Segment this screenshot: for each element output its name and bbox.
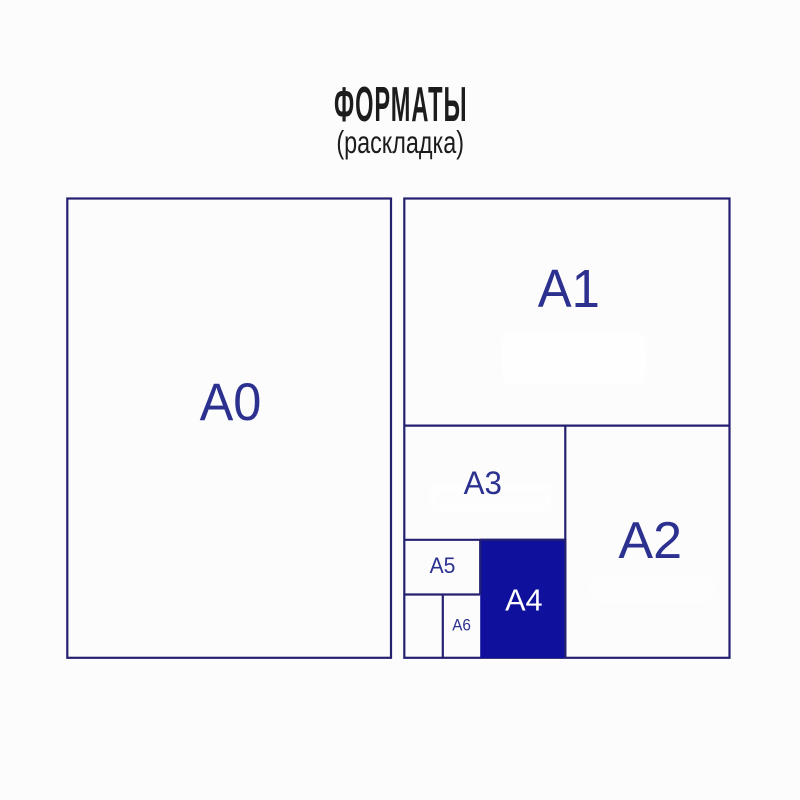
svg-text:A3: A3 bbox=[464, 464, 502, 501]
svg-text:A6: A6 bbox=[452, 617, 471, 635]
svg-text:A0: A0 bbox=[200, 372, 262, 431]
svg-text:A4: A4 bbox=[505, 582, 543, 617]
svg-text:A1: A1 bbox=[538, 260, 600, 319]
svg-text:(раскладка): (раскладка) bbox=[336, 125, 464, 160]
svg-text:A5: A5 bbox=[430, 552, 456, 578]
svg-text:A2: A2 bbox=[618, 512, 682, 570]
